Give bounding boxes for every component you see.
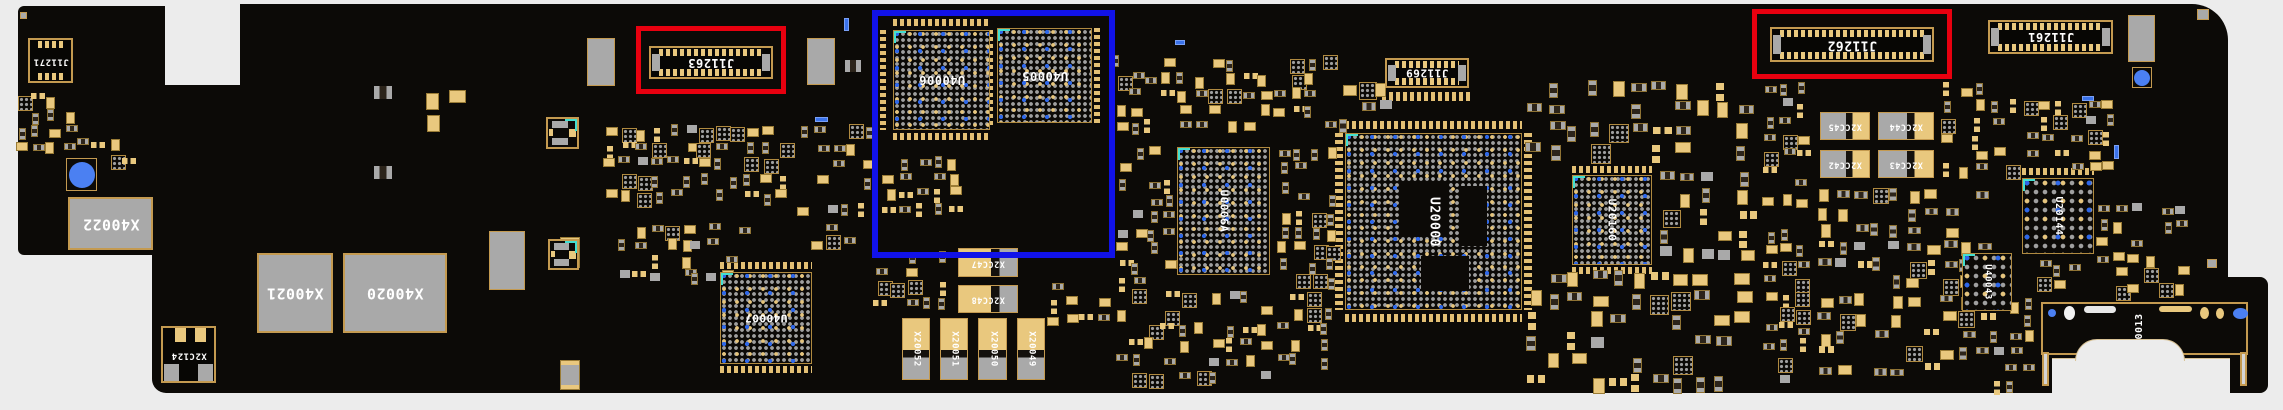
passive-component [726,256,738,263]
small-ic [1132,289,1147,304]
passive-component [1978,243,1991,251]
passive-component [684,225,696,234]
passive-component [1673,274,1689,286]
passive-component [1633,123,1649,132]
passive-component [846,144,855,156]
passive-component [1694,290,1710,299]
passive-component [687,125,697,133]
passive-component [1295,227,1302,239]
passive-component [1959,347,1967,360]
small-ic [2144,268,2159,283]
board-edge-cutout [2075,339,2185,361]
passive-component [33,144,45,151]
passive-component [1261,371,1271,379]
passive-component [668,238,677,250]
passive-component [1946,228,1959,238]
passive-component [2097,256,2109,263]
passive-component [1280,258,1287,270]
passive-component [1209,105,1221,114]
passive-component [31,93,45,99]
passive-component [1893,296,1903,309]
passive-component [1972,136,1978,150]
small-ic [652,143,667,158]
passive-component [1781,229,1788,241]
passive-component [1292,87,1301,99]
screw-hole [2132,67,2152,88]
passive-component [638,157,648,165]
passive-component [2175,284,2184,296]
pad-strip [1345,121,1522,129]
passive-component [1180,341,1189,353]
passive-component [1653,374,1669,383]
passive-component [1717,102,1729,118]
passive-component [876,268,888,275]
passive-component [1907,243,1920,251]
small-ic [1609,124,1629,144]
passive-component [1944,240,1957,248]
passive-component [91,142,105,148]
passive-component [1051,300,1057,314]
small-ic [622,128,637,143]
refdes-label: X20050 [988,331,997,367]
passive-component [1739,231,1746,248]
passive-component [1783,194,1792,206]
connector-footprint-pad [2159,306,2192,312]
passive-component [1718,250,1730,260]
passive-component [1990,331,1997,343]
passive-component [1856,314,1866,327]
passive-component [1976,99,1985,111]
passive-component [1567,292,1583,301]
small-ic [1796,310,1811,325]
passive-component [762,126,774,135]
passive-component [747,142,754,154]
passive-component [1940,350,1953,360]
passive-component [1944,101,1951,113]
passive-component [1906,278,1919,288]
passive-component [1380,100,1392,110]
passive-component [844,237,856,244]
passive-component [1209,358,1219,366]
bga-keepout [1421,256,1469,291]
passive-component [1294,241,1306,250]
passive-component [2089,101,2101,108]
passive-component [1163,211,1175,218]
small-ic [1906,346,1923,363]
refdes-label: U40043 [1983,264,1992,300]
refdes-label: X40022 [82,216,139,231]
connector-pins [1998,23,2103,30]
passive-component [1798,328,1810,335]
passive-component [1230,291,1240,299]
refdes-label: U0006A [1218,190,1229,233]
passive-component [2162,208,2174,215]
pad-strip [1524,133,1532,310]
passive-component [1550,294,1559,310]
passive-component [743,174,750,186]
passive-component [122,158,136,164]
passive-component [1780,84,1787,96]
passive-component [1240,338,1252,345]
passive-component [606,189,618,198]
passive-component [603,158,615,167]
small-ic [716,126,731,141]
passive-component [1290,294,1304,300]
passive-component [1590,122,1599,138]
passive-component [1321,339,1328,351]
small-ic [1782,261,1797,276]
small-ic [1312,213,1327,228]
passive-component [2041,117,2047,131]
pad-strip [720,262,812,269]
passive-component [449,90,466,103]
passive-component [1818,208,1828,221]
passive-component [1551,145,1560,161]
passive-component [1797,104,1803,118]
passive-component [1981,313,1996,320]
connector-end-pad [1991,28,1999,46]
small-ic [637,193,652,208]
passive-component [1974,118,1980,132]
refdes-label: X20049 [1027,331,1036,367]
small-ic [696,143,711,158]
passive-component [818,145,830,152]
passive-component [1274,90,1286,97]
passive-component [1796,245,1803,257]
passive-component [1763,343,1775,350]
passive-component [656,192,663,204]
passive-component [1117,122,1129,131]
small-ic [622,174,637,189]
passive-component [841,204,848,216]
passive-component [1652,145,1660,163]
passive-component [1329,195,1336,207]
passive-component [1819,367,1832,375]
refdes-label: U20000 [1427,197,1440,247]
passive-component [66,125,78,132]
shield-pad [489,231,525,290]
passive-component [1780,339,1787,351]
passive-component [1117,105,1126,117]
passive-component [1549,105,1565,114]
passive-component [1160,323,1174,329]
shield-pad [2128,15,2155,62]
passive-component [1976,151,1988,160]
passive-component [1676,126,1692,135]
small-ic [2088,130,2103,145]
passive-component [1891,315,1901,328]
passive-component [2006,381,2013,393]
passive-component [1928,260,1935,275]
passive-component [1821,334,1831,347]
refdes-label: J11271 [33,56,69,65]
component-u40007: U40007 [720,272,812,364]
small-ic [1764,152,1779,167]
connector-footprint-pad [2200,307,2209,319]
passive-component [940,282,946,296]
passive-component [621,190,630,202]
passive-component [1145,77,1157,84]
passive-component [1672,315,1681,331]
passive-component [1765,86,1777,93]
passive-component [1836,331,1844,344]
passive-component [1261,341,1273,350]
passive-component [1309,263,1316,275]
passive-component [1675,101,1691,110]
passive-component [32,113,39,125]
passive-component [858,203,864,217]
passive-component [2176,220,2188,227]
passive-component [1766,292,1778,301]
crystal-pad [552,138,568,145]
passive-component [1741,250,1755,261]
component-x2cc45: X2CC45 [1820,112,1870,140]
passive-component [1680,194,1691,208]
component-x20051: X20051 [940,318,968,380]
passive-component [1714,315,1730,327]
passive-component [1675,142,1691,154]
passive-component [1588,80,1597,96]
passive-component [2040,260,2052,267]
corner-mark [1963,254,1975,266]
passive-component [1281,162,1288,174]
passive-component [1294,309,1303,321]
passive-component [1660,246,1672,256]
passive-component [1304,106,1311,118]
connector-footprint-pad [2064,306,2075,320]
passive-component [1119,278,1125,292]
passive-component [1991,101,1998,113]
passive-component [1166,195,1173,207]
passive-component [1298,193,1310,200]
passive-component [1116,242,1128,251]
component-x2c124: X2C124 [161,326,216,383]
passive-component [635,143,647,150]
passive-component [2116,267,2128,276]
passive-component [1151,242,1158,254]
passive-component [764,194,771,206]
passive-component [1874,368,1887,376]
passive-component [1893,275,1901,288]
passive-component [2010,333,2022,340]
passive-component [1196,90,1208,97]
refdes-label: X2C124 [171,350,207,359]
small-ic [1873,188,1890,205]
passive-component [1149,146,1161,155]
small-ic [2053,115,2068,130]
refdes-label: X20051 [950,331,959,367]
passive-component [1291,340,1300,352]
small-ic [1958,311,1975,328]
passive-component [1763,262,1777,268]
passive-component [1943,311,1956,321]
passive-component [1133,72,1145,79]
passive-component [637,227,646,239]
passive-component [1129,88,1141,95]
passive-component [1908,209,1916,222]
passive-component [1716,336,1732,345]
passive-component [826,224,838,231]
passive-component [618,239,625,251]
passive-component [828,205,838,213]
passive-component [1261,306,1273,315]
component-u20144: U20144 [2022,178,2094,254]
passive-component [1119,179,1126,191]
passive-component [923,297,930,309]
passive-component [1889,225,1897,238]
passive-component [64,143,76,150]
passive-component [1613,81,1625,97]
passive-component [745,191,759,197]
passive-component [1994,347,2004,355]
test-point-mark [2082,96,2094,101]
passive-component [671,124,678,136]
passive-component [1961,88,1973,97]
component-j11271: J11271 [28,38,73,83]
small-ic [1663,210,1681,228]
board-outline [165,85,240,255]
passive-component [1526,336,1535,352]
pad-strip [1335,133,1343,310]
passive-component [1800,338,1806,352]
passive-component [1692,274,1708,286]
passive-component [1047,317,1059,326]
connector-pins [1998,44,2103,51]
passive-component [2055,101,2061,115]
passive-component [618,156,630,163]
passive-component [654,128,660,142]
passive-component [814,126,826,133]
passive-component [2175,206,2185,214]
shield-pad [2197,9,2209,20]
passive-component [1278,354,1290,361]
passive-component [1531,290,1543,306]
small-ic [1132,373,1147,388]
refdes-label: X2CC45 [1828,122,1862,131]
passive-component [1527,375,1545,383]
passive-component [1683,248,1694,262]
passive-component [1890,369,1903,377]
passive-component [1762,197,1774,206]
passive-component [873,300,887,306]
small-ic [2037,277,2052,292]
passive-component [1326,258,1333,270]
passive-component [1673,378,1682,394]
passive-component [775,189,787,198]
passive-component [1079,314,1093,320]
passive-component [864,178,871,190]
passive-component [49,129,61,138]
passive-component [1779,117,1791,124]
refdes-label: J11261 [2027,31,2073,43]
small-ic [1591,144,1611,164]
connector-end-pad [1458,65,1466,81]
passive-component [2165,222,2172,234]
small-ic [890,283,905,298]
component-x2cc43: X2CC43 [1878,150,1934,178]
component-u20160: U20160 [1572,175,1652,265]
crystal-oscillator [548,239,579,270]
passive-component [1821,224,1831,237]
passive-component [1889,188,1897,201]
small-ic [1323,55,1338,70]
passive-component [1133,210,1143,218]
passive-component [1854,242,1865,251]
edge-slot-mark [2042,352,2049,386]
passive-component [1132,123,1139,135]
passive-component [1610,314,1626,323]
passive-component [1856,224,1869,232]
passive-component [1176,72,1183,84]
passive-component [2024,315,2031,327]
passive-component [1872,257,1880,270]
passive-component [1910,191,1920,204]
passive-component [2027,132,2039,139]
small-ic [1778,358,1793,373]
passive-component [1676,84,1688,100]
ic-pad [195,328,206,342]
passive-component [707,238,719,245]
passive-component [1567,332,1575,350]
passive-component [1660,171,1674,179]
passive-component [1680,173,1694,181]
passive-component [66,112,75,124]
passive-component [1243,92,1255,99]
connector-pins [38,73,63,80]
passive-component [651,176,658,188]
passive-component [1244,122,1256,131]
passive-component [1943,82,1949,96]
passive-component [1840,242,1848,255]
shield-pad [20,12,27,19]
component-x40022: X40022 [68,197,153,250]
crystal-pad [554,259,569,266]
ic-pad [198,364,213,381]
small-ic [1673,356,1693,376]
pad-strip [720,366,812,373]
passive-component [1296,211,1302,225]
passive-component [606,127,618,136]
connector-footprint-pad [2233,308,2248,319]
small-ic [2159,283,2174,298]
connector-end-pad [1388,65,1396,81]
passive-component [1858,261,1873,268]
component-x20050: X20050 [978,318,1007,380]
edge-slot-mark [2240,352,2247,386]
component-x40021: X40021 [257,253,333,333]
passive-component [1651,81,1667,90]
passive-component [834,145,846,152]
passive-component [1179,325,1186,337]
small-ic [849,124,864,139]
component-j11261: J11261 [1988,20,2113,54]
red-highlight-box-2 [1752,9,1952,79]
pad-strip [1382,92,1470,101]
passive-component [1737,190,1748,204]
passive-component [2090,162,2102,171]
pad-strip [1345,314,1522,322]
passive-component [2005,364,2017,371]
crystal-oscillator [546,117,579,149]
passive-component [1854,191,1867,199]
passive-component [2055,150,2069,156]
refdes-label: X40021 [266,286,323,301]
passive-component [2010,99,2016,113]
passive-component [1740,211,1757,218]
passive-component [1697,100,1709,116]
passive-component [1908,227,1921,235]
passive-component [1257,324,1266,336]
